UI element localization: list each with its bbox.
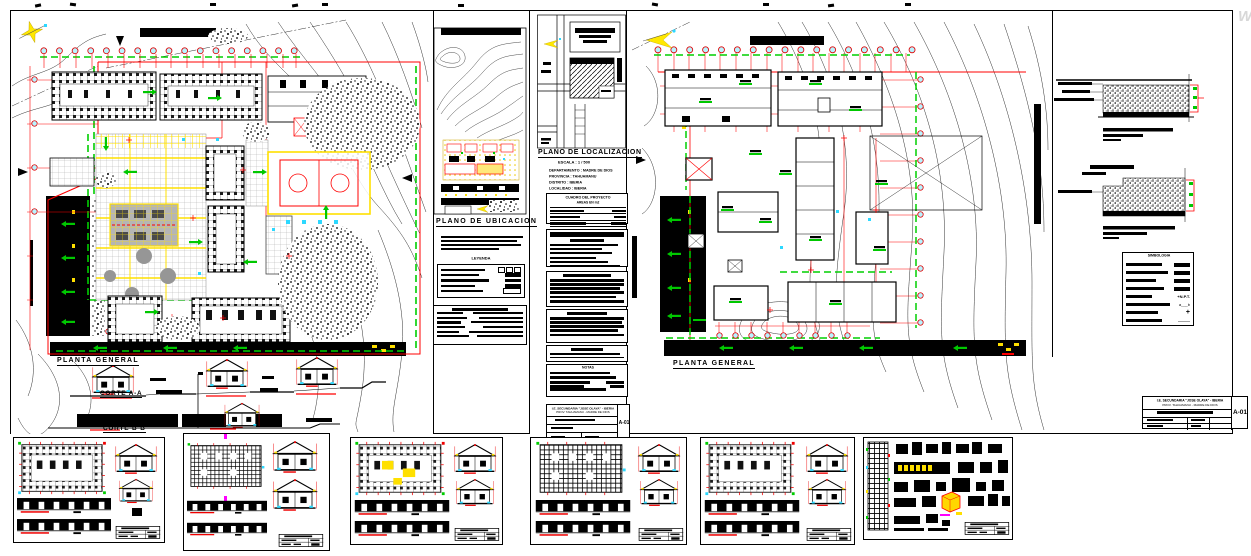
- plano-ubicacion-drawing: [433, 18, 527, 216]
- cuadro-proyecto-box: CUADRO DEL PROYECTO AREAS EN m2: [546, 193, 628, 224]
- ubicacion-notes: [441, 236, 525, 250]
- detail-sheet-6: [863, 437, 1013, 540]
- left-plan-title: PLANTA GENERAL: [57, 357, 139, 366]
- localizacion-escala: ESCALA : 1 / 500: [558, 160, 590, 165]
- corte-a-title: CORTE A-A: [100, 390, 142, 398]
- ubicacion-title: PLANO DE UBICACION: [436, 218, 537, 227]
- simbologia-box: SIMBOLOGIA +N.P.T. a___b + ———: [1122, 252, 1194, 326]
- loc-field-1: PROVINCIA : TAHUAMANU: [549, 174, 596, 179]
- corte-b-drawing: [48, 372, 340, 430]
- detail-sheet-1: [13, 437, 165, 543]
- right-site-plan-drawing: [630, 10, 1050, 434]
- cad-sheet: W: [0, 0, 1251, 556]
- notas-box: NOTAS: [546, 364, 628, 397]
- loc-field-0: DEPARTAMENTO : MADRE DE DIOS: [549, 168, 613, 173]
- right-plan-title: PLANTA GENERAL: [673, 360, 755, 369]
- table-box-5: [546, 345, 628, 362]
- ubicacion-data-table: [433, 305, 527, 345]
- legend-ab-symbol: a___b: [1179, 302, 1190, 307]
- loc-field-2: DISTRITO : IBERIA: [549, 180, 582, 185]
- leyenda-title: LEYENDA: [437, 256, 525, 261]
- detail-sheet-2: [183, 433, 330, 551]
- table-box-2: [546, 229, 628, 267]
- corte-b-title: CORTE B-B: [103, 425, 146, 433]
- plano-localizacion-drawing: [537, 14, 626, 149]
- north-arrow-icon: [643, 29, 676, 48]
- localizacion-title: PLANO DE LOCALIZACION: [538, 149, 642, 158]
- detail-sheet-4: [530, 437, 687, 545]
- left-site-plan-drawing: [10, 10, 432, 434]
- loc-field-3: LOCALIDAD : IBERIA: [549, 186, 587, 191]
- central-sheet-code: A-01: [618, 420, 630, 426]
- table-box-4: [546, 309, 628, 343]
- legend-dash-symbol: ———: [1178, 318, 1190, 323]
- leyenda-box: [437, 264, 525, 298]
- north-compass-icon: [16, 18, 49, 46]
- main-sheet-code: A-01: [1232, 409, 1248, 416]
- legend-plus-symbol: +: [1186, 309, 1190, 316]
- frame-bottom-a: [433, 433, 529, 434]
- legend-npt-symbol: +N.P.T.: [1177, 294, 1190, 299]
- main-title-block: I.E. SECUNDARIA "JOSE OLAYA" - IBERIA PR…: [1142, 396, 1248, 429]
- watermark: W: [1238, 8, 1251, 25]
- detail-sheet-5: [700, 437, 855, 545]
- table-box-3: [546, 271, 628, 307]
- detail-sheet-3: [350, 437, 503, 545]
- frame-right: [1232, 10, 1233, 434]
